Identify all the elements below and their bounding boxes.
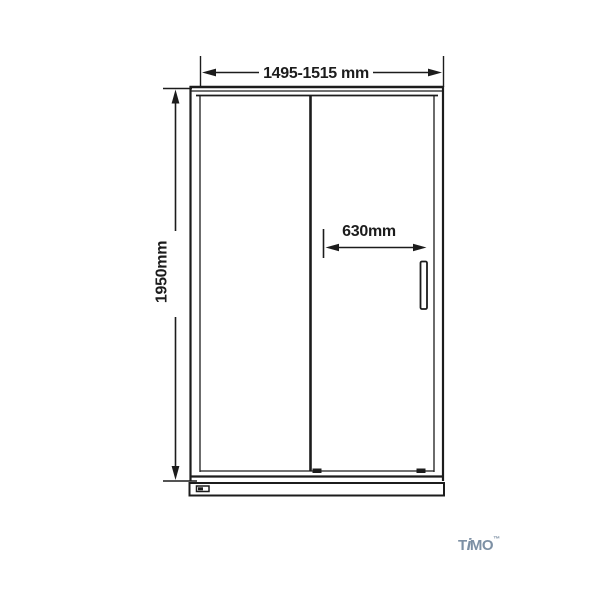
width-dimension: 1495-1515 mm bbox=[201, 56, 444, 87]
height-arrow-down-icon bbox=[172, 466, 180, 480]
roller-right-mark bbox=[417, 469, 426, 474]
opening-dimension: 630mm bbox=[324, 223, 427, 258]
door-frame bbox=[190, 86, 445, 481]
door-handle bbox=[421, 262, 428, 310]
width-arrow-left-icon bbox=[202, 69, 216, 77]
technical-drawing: 1495-1515 mm 1950mm 630mm bbox=[0, 0, 600, 600]
width-dimension-label: 1495-1515 mm bbox=[263, 65, 369, 82]
opening-dimension-label: 630mm bbox=[342, 223, 396, 240]
opening-arrow-right-icon bbox=[413, 244, 427, 251]
opening-arrow-left-icon bbox=[326, 244, 340, 251]
tray-bracket-fill bbox=[198, 487, 203, 490]
height-dimension-label: 1950mm bbox=[154, 241, 171, 303]
bottom-tray bbox=[190, 483, 445, 496]
diagram-canvas: 1495-1515 mm 1950mm 630mm TiMO™ bbox=[0, 0, 600, 600]
width-arrow-right-icon bbox=[428, 69, 442, 77]
tray-outline bbox=[190, 483, 445, 496]
brand-logo: TiMO™ bbox=[458, 536, 500, 553]
roller-left-mark bbox=[313, 469, 322, 474]
height-arrow-up-icon bbox=[172, 90, 180, 104]
logo-trademark-icon: ™ bbox=[493, 536, 500, 543]
handle-bar bbox=[421, 262, 428, 310]
logo-letters-mo: MO bbox=[470, 537, 493, 554]
logo-letter-t: T bbox=[458, 537, 467, 554]
